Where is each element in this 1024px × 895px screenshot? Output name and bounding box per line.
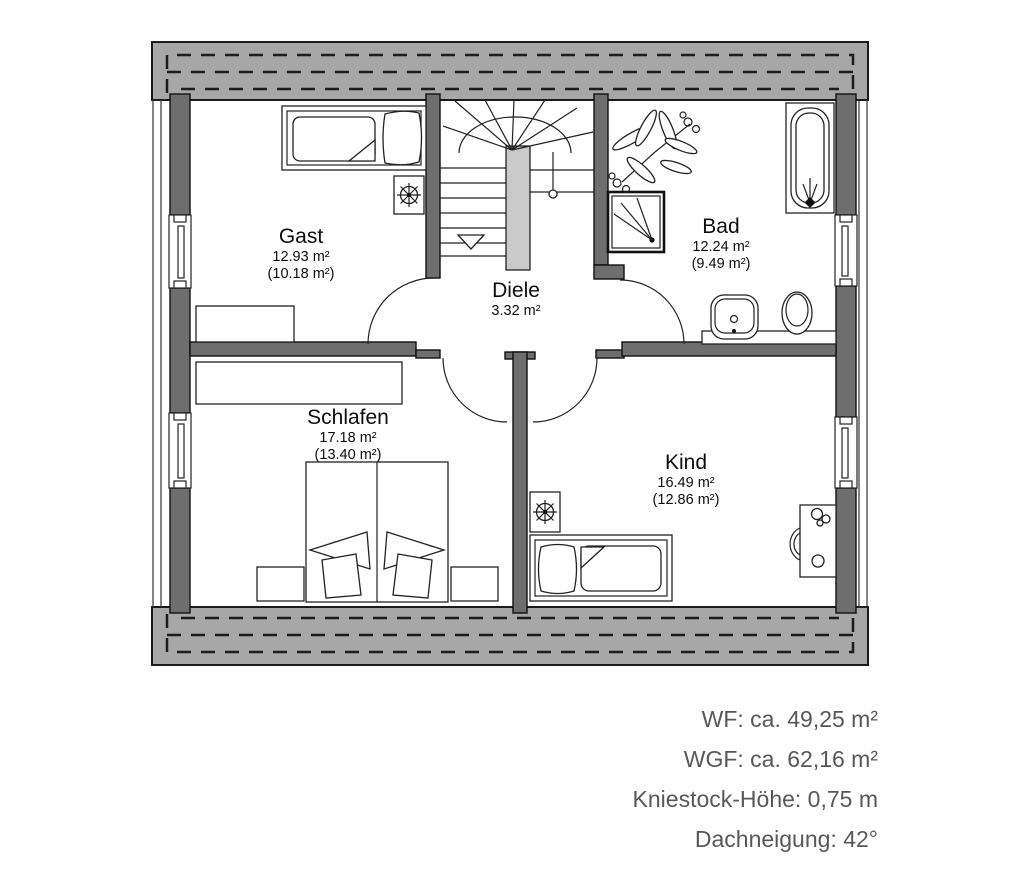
room-name: Bad [692,214,751,239]
door-swing-kind [533,358,597,422]
room-label-kind: Kind 16.49 m² (12.86 m²) [653,450,720,509]
stat-kniestock: Kniestock-Höhe: 0,75 m [633,779,878,819]
room-area: 3.32 m² [491,303,540,320]
room-name: Schlafen [307,405,389,430]
schlafen-nightstand-right [451,567,498,601]
room-area: 16.49 m² [653,475,720,492]
stat-wgf: WGF: ca. 62,16 m² [633,739,878,779]
double-bed-icon [306,462,448,602]
room-area-reduced: (9.49 m²) [692,256,751,273]
gast-bed-icon [282,106,426,170]
room-area-reduced: (10.18 m²) [268,266,335,283]
room-name: Diele [491,278,540,303]
kind-desk-icon [800,505,836,577]
roof-overhang-bottom [152,607,868,665]
room-area-reduced: (12.86 m²) [653,492,720,509]
window-right-lower [835,417,857,488]
room-label-schlafen: Schlafen 17.18 m² (13.40 m²) [307,405,389,464]
room-label-gast: Gast 12.93 m² (10.18 m²) [268,224,335,283]
kind-nightstand [530,492,560,532]
staircase-symbol [440,100,594,270]
window-left-upper [169,215,191,288]
door-swing-schlafen [443,358,507,422]
schlafen-sideboard [196,362,402,404]
door-swing-gast [368,278,434,344]
floor-plan-page: { "rooms": { "gast": {"name": "Gast", "a… [0,0,1024,895]
window-left-lower [169,413,191,488]
window-right-upper [835,215,857,286]
bathtub-icon [786,103,834,213]
stat-wf: WF: ca. 49,25 m² [633,699,878,739]
roof-overhang-top [152,42,868,100]
kind-bed-icon [530,535,672,601]
plant-icon [609,108,700,193]
shower-icon [608,192,664,252]
room-area: 12.24 m² [692,239,751,256]
schlafen-nightstand-left [257,567,304,601]
stat-dachneigung: Dachneigung: 42° [633,819,878,859]
room-label-bad: Bad 12.24 m² (9.49 m²) [692,214,751,273]
plan-stats: WF: ca. 49,25 m² WGF: ca. 62,16 m² Knies… [633,699,878,859]
room-area: 17.18 m² [307,430,389,447]
room-label-diele: Diele 3.32 m² [491,278,540,320]
stair-direction-arrow [458,235,484,249]
washbasin-icon [711,295,758,339]
toilet-icon [782,292,812,334]
room-name: Gast [268,224,335,249]
kind-chair-icon [790,528,800,560]
room-area-reduced: (13.40 m²) [307,447,389,464]
door-swing-bad [620,280,684,344]
room-area: 12.93 m² [268,249,335,266]
room-name: Kind [653,450,720,475]
gast-nightstand [394,176,424,214]
gast-dresser [196,306,294,342]
